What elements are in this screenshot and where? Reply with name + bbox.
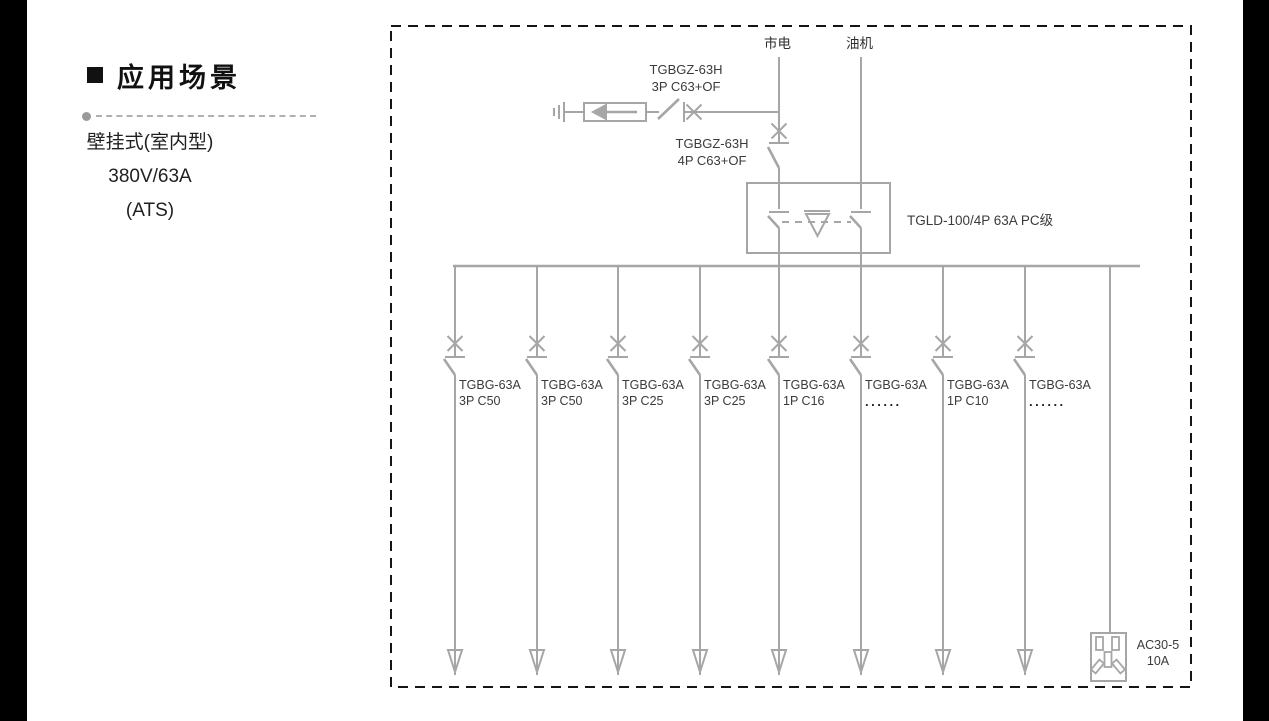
page: 应用场景 壁挂式(室内型) 380V/63A (ATS) <box>0 0 1269 721</box>
branch-7 <box>932 266 953 675</box>
generator-label: 油机 <box>846 35 873 52</box>
branch-3 <box>607 266 628 675</box>
right-black-strip <box>1243 0 1269 721</box>
branch-7-spec: 1P C10 <box>947 394 988 408</box>
spec-list: 壁挂式(室内型) 380V/63A (ATS) <box>84 126 216 228</box>
left-black-strip <box>0 0 27 721</box>
single-line-diagram-panel: 市电 油机 TGBGZ-63H 3P C63+OF TGBGZ-63H 4P C… <box>390 25 1192 688</box>
separator-dashes <box>96 115 316 117</box>
branch-6 <box>850 266 871 675</box>
socket-label: AC30-5 10A <box>1130 637 1186 669</box>
socket-branch <box>1091 266 1126 681</box>
branch-8 <box>1014 266 1035 675</box>
branch-2-model: TGBG-63A <box>541 378 603 392</box>
branch-8-spec: ...... <box>1029 394 1066 409</box>
branch-2 <box>526 266 547 675</box>
branch-6-spec: ...... <box>865 394 902 409</box>
separator-dot-icon <box>82 112 91 121</box>
page-title: 应用场景 <box>117 56 241 95</box>
dashed-separator <box>82 112 318 122</box>
panel-dashed-border <box>391 26 1191 687</box>
branch-5-model: TGBG-63A <box>783 378 845 392</box>
ats-label: TGLD-100/4P 63A PC级 <box>907 212 1053 229</box>
ats-box <box>747 183 890 266</box>
spec-rating: 380V/63A <box>84 160 216 194</box>
branch-5-spec: 1P C16 <box>783 394 824 408</box>
branch-8-model: TGBG-63A <box>1029 378 1091 392</box>
main-breaker-label: TGBGZ-63H 4P C63+OF <box>652 135 772 169</box>
branch-4-model: TGBG-63A <box>704 378 766 392</box>
square-bullet-icon <box>87 67 103 83</box>
branch-4-spec: 3P C25 <box>704 394 745 408</box>
spec-mounting: 壁挂式(室内型) <box>84 126 216 160</box>
branch-5 <box>768 266 789 675</box>
branch-1-model: TGBG-63A <box>459 378 521 392</box>
diagram-canvas <box>390 25 1192 688</box>
spd-breaker-label: TGBGZ-63H 3P C63+OF <box>626 61 746 95</box>
branch-7-model: TGBG-63A <box>947 378 1009 392</box>
branch-3-model: TGBG-63A <box>622 378 684 392</box>
spd-branch <box>554 99 779 122</box>
mains-label: 市电 <box>764 35 791 52</box>
branch-1-spec: 3P C50 <box>459 394 500 408</box>
branch-2-spec: 3P C50 <box>541 394 582 408</box>
branch-6-model: TGBG-63A <box>865 378 927 392</box>
branch-1 <box>444 266 465 675</box>
branch-4 <box>689 266 710 675</box>
branch-3-spec: 3P C25 <box>622 394 663 408</box>
spec-type: (ATS) <box>84 194 216 228</box>
